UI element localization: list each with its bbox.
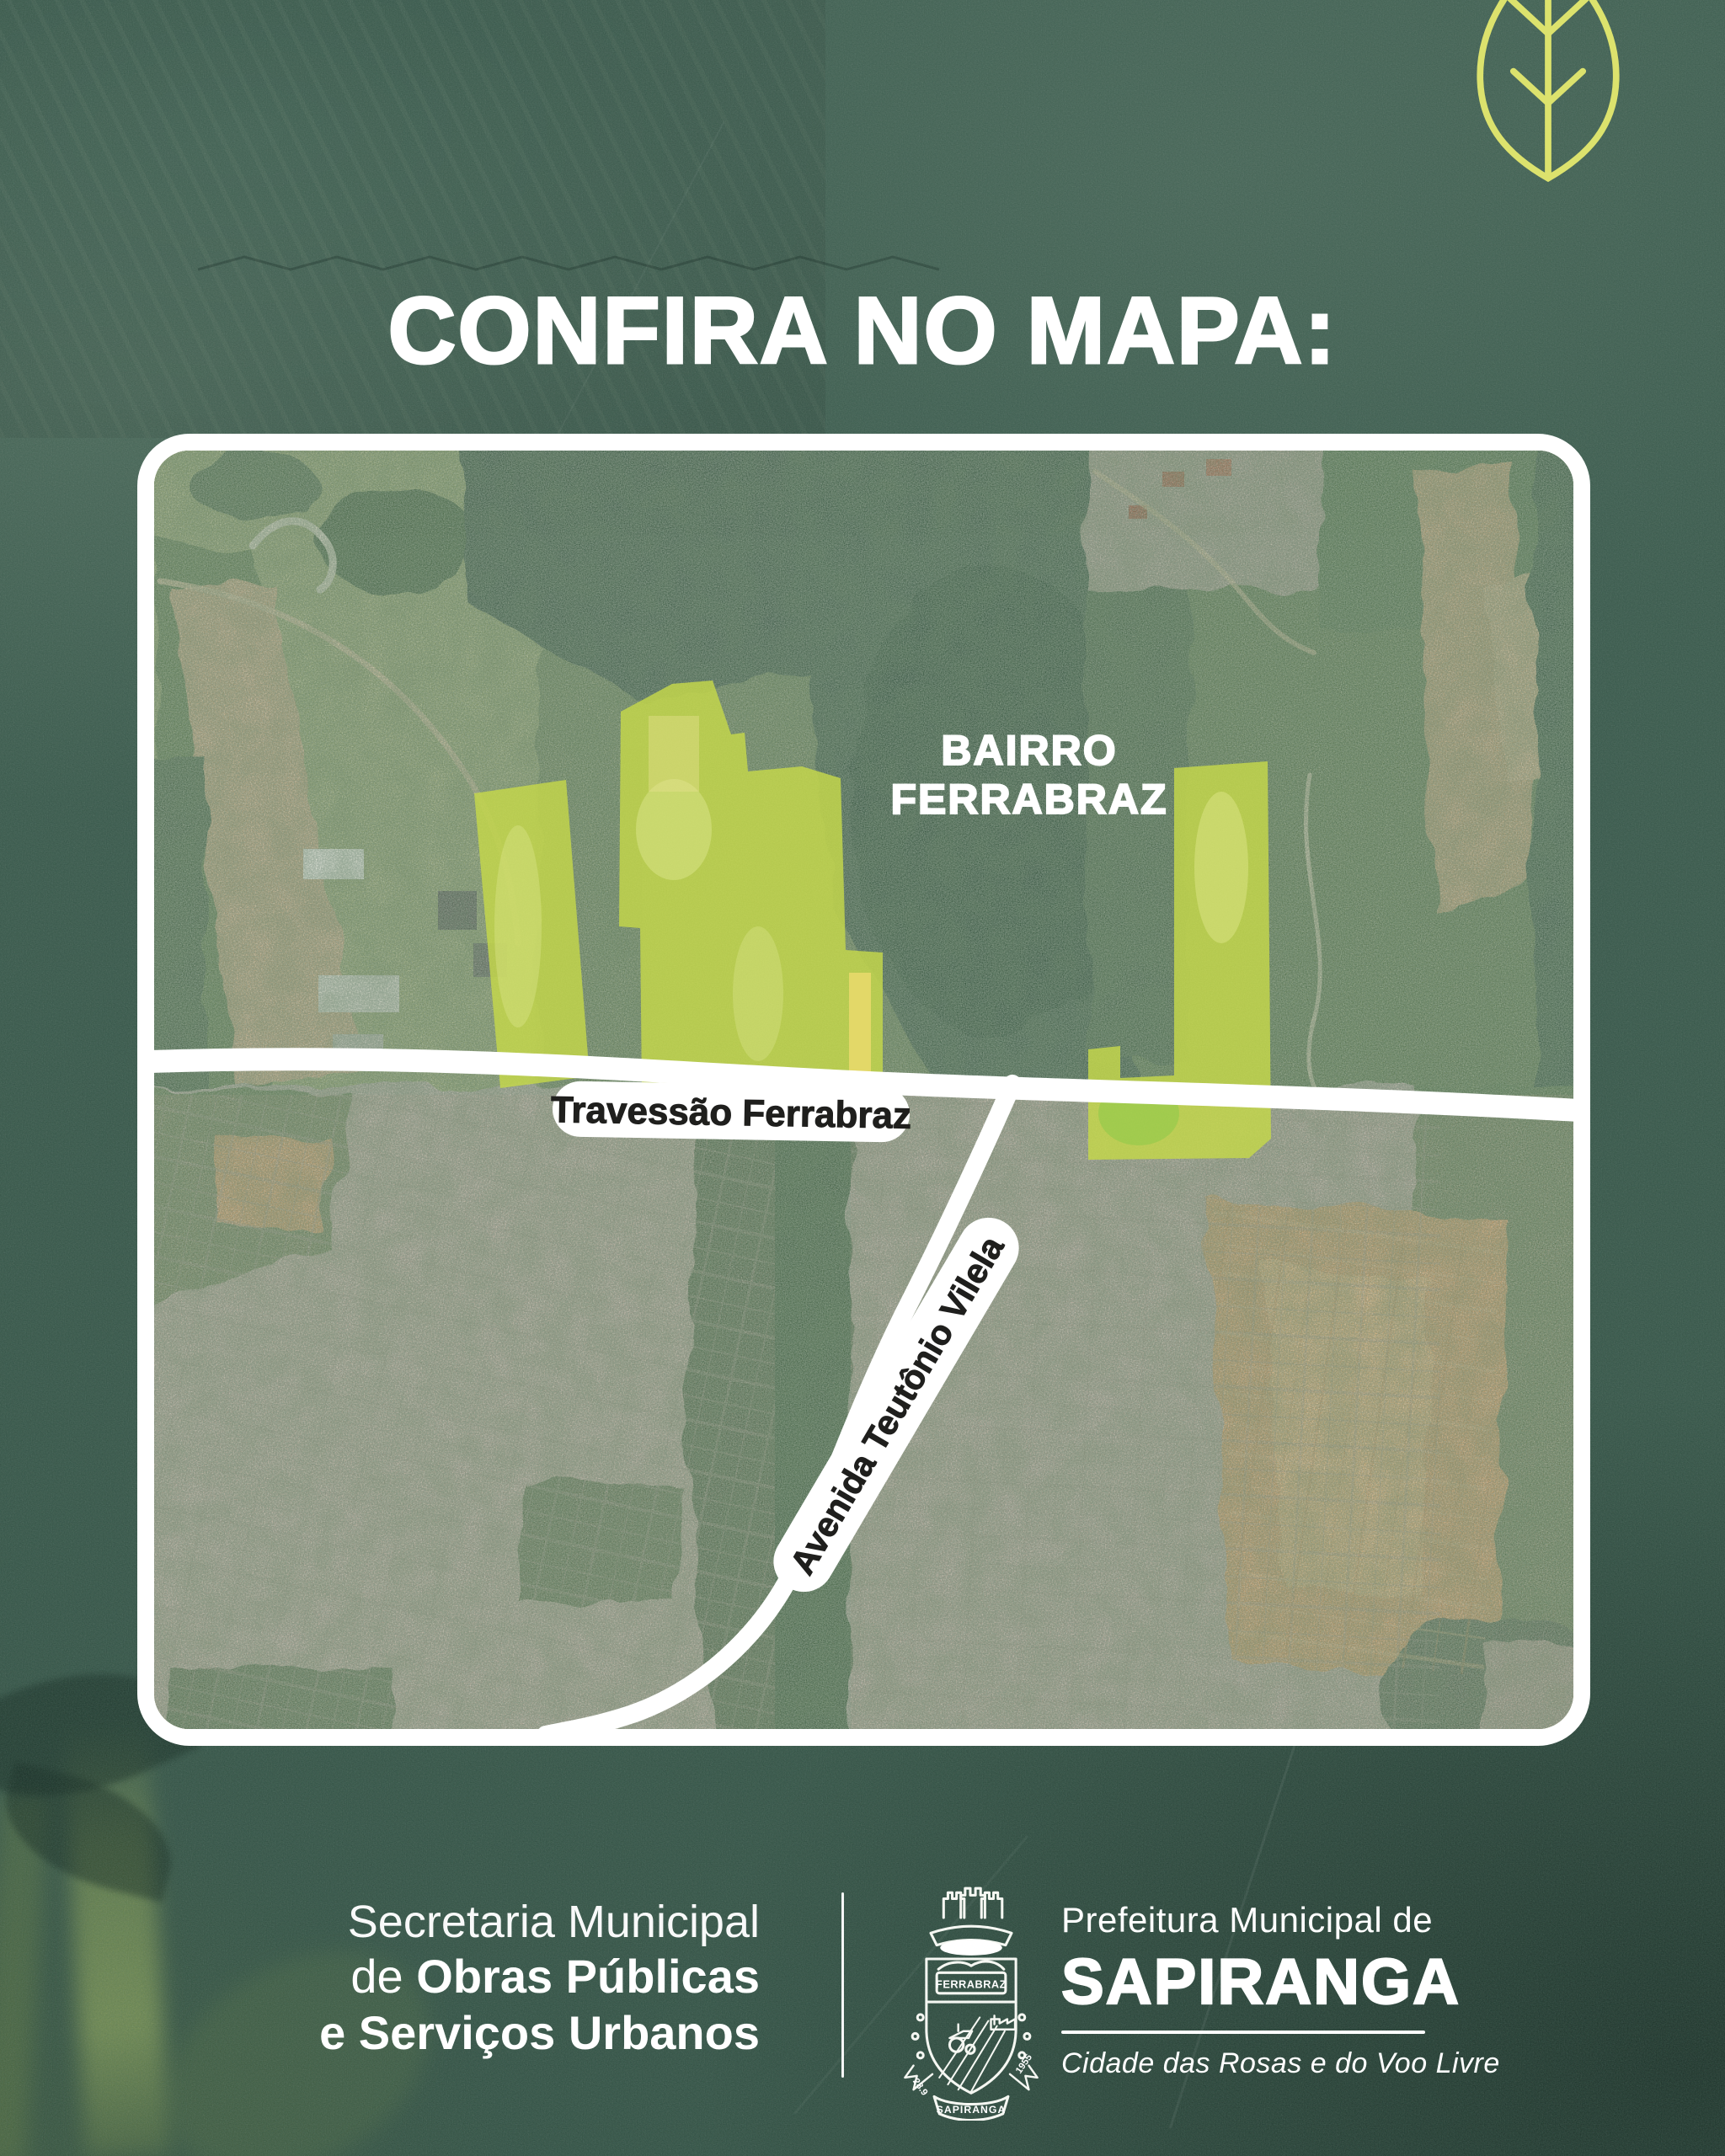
footer: Secretaria Municipal de Obras Públicas e… xyxy=(0,1853,1725,2156)
crest-banner-text: FERRABRAZ xyxy=(936,1978,1007,1991)
secretariat-line2-bold: Obras Públicas xyxy=(416,1950,760,2003)
crest-ribbon-right: 1955 xyxy=(1014,2052,1034,2075)
satellite-map: BAIRRO FERRABRAZ Travessão Ferrabraz Ave… xyxy=(154,451,1573,1729)
divider-rule xyxy=(1061,2031,1425,2034)
poster-background: CONFIRA NO MAPA: xyxy=(0,0,1725,2156)
secretariat-line3: e Serviços Urbanos xyxy=(253,2007,760,2060)
page-title: CONFIRA NO MAPA: xyxy=(0,276,1725,385)
prefecture-text: Prefeitura Municipal de SAPIRANGA Cidade… xyxy=(1061,1900,1500,2080)
coat-of-arms: FERRABRAZ 28.9 1955 SAPIRANGA xyxy=(898,1880,1044,2121)
secretariat-line2-prefix: de xyxy=(350,1950,416,2003)
crest-ribbon-bottom: SAPIRANGA xyxy=(937,2104,1007,2116)
city-name: SAPIRANGA xyxy=(1061,1945,1500,2019)
footer-divider xyxy=(841,1892,844,2078)
prefecture-line1: Prefeitura Municipal de xyxy=(1061,1900,1500,1940)
map-panel: BAIRRO FERRABRAZ Travessão Ferrabraz Ave… xyxy=(137,434,1590,1746)
leaf-icon xyxy=(1461,0,1635,187)
city-slogan: Cidade das Rosas e do Voo Livre xyxy=(1061,2047,1500,2080)
secretariat-line1: Secretaria Municipal xyxy=(253,1897,760,1947)
road-label-travessao: Travessão Ferrabraz xyxy=(551,1089,912,1136)
area-label-line1: BAIRRO xyxy=(941,727,1117,774)
secretariat-text: Secretaria Municipal de Obras Públicas e… xyxy=(253,1897,760,2060)
road-label-pill-travessao: Travessão Ferrabraz xyxy=(550,1081,911,1142)
area-label-line2: FERRABRAZ xyxy=(890,776,1167,823)
